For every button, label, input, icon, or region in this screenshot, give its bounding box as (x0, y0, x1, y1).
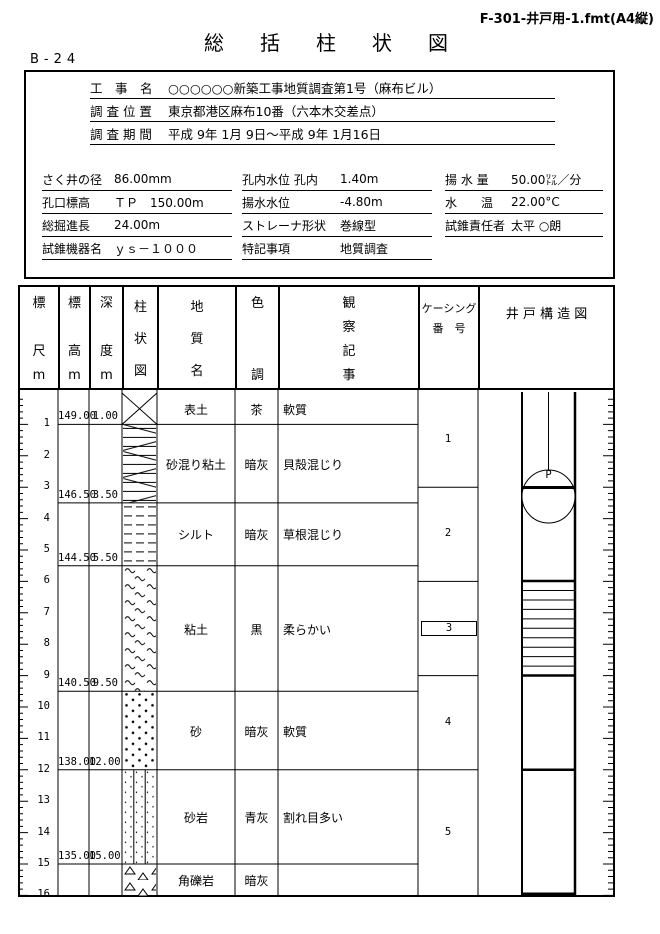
scale-label: 8 (24, 637, 50, 649)
casing-number: 2 (418, 527, 478, 539)
depth-value: 3.50 (89, 489, 118, 501)
soil-name: シルト (158, 526, 234, 543)
depth-value: 15.00 (89, 850, 118, 862)
depth-value: 5.50 (89, 552, 118, 564)
casing-number: 5 (418, 826, 478, 838)
soil-name: 角礫岩 (158, 872, 234, 889)
soil-name: 表土 (158, 401, 234, 418)
color-tone: 黒 (236, 621, 277, 638)
scale-label: 13 (24, 794, 50, 806)
observation-note: 軟質 (283, 723, 415, 740)
lithology-pattern-sand (123, 692, 156, 770)
elevation-value: 144.50 (58, 552, 86, 564)
lithology-pattern-topsoil (122, 393, 157, 424)
elevation-value: 140.50 (58, 677, 86, 689)
lithology-column (122, 393, 157, 896)
right-ruler (603, 399, 613, 895)
scale-label: 11 (24, 731, 50, 743)
color-tone: 茶 (236, 401, 277, 418)
scale-label: 9 (24, 669, 50, 681)
depth-value: 12.00 (89, 756, 118, 768)
boring-log-page: F-301-井戸用-1.fmt(A4縦) 総 括 柱 状 図 B-24 工 事 … (0, 0, 660, 934)
soil-name: 砂 (158, 723, 234, 740)
elevation-value: 135.00 (58, 850, 86, 862)
observation-note: 軟質 (283, 401, 415, 418)
lithology-pattern-sandstone (123, 770, 156, 863)
casing-number: 4 (418, 716, 478, 728)
scale-label: 10 (24, 700, 50, 712)
color-tone: 暗灰 (236, 723, 277, 740)
scale-label: 2 (24, 449, 50, 461)
elevation-value: 138.00 (58, 756, 86, 768)
scale-label: 16 (24, 888, 50, 900)
depth-value: 1.00 (89, 410, 118, 422)
scale-label: 7 (24, 606, 50, 618)
scale-label: 15 (24, 857, 50, 869)
table-body-layer: 12345678910111213141516表土茶軟質149.001.00砂混… (0, 0, 660, 934)
lithology-pattern-breccia (123, 865, 156, 897)
lithology-pattern-clay (123, 566, 156, 691)
soil-name: 砂混り粘土 (158, 456, 234, 473)
casing-number: 1 (418, 433, 478, 445)
color-tone: 暗灰 (236, 526, 277, 543)
scale-label: 1 (24, 417, 50, 429)
lithology-pattern-sandy-clay (123, 425, 156, 503)
elevation-value: 146.50 (58, 489, 86, 501)
observation-note: 貝殻混じり (283, 456, 415, 473)
scale-label: 14 (24, 826, 50, 838)
well-structure (521, 392, 576, 895)
casing-number-boxed: 3 (421, 621, 477, 636)
scale-label: 12 (24, 763, 50, 775)
observation-note: 草根混じり (283, 526, 415, 543)
scale-label: 4 (24, 512, 50, 524)
observation-note: 割れ目多い (283, 809, 415, 826)
lithology-pattern-silt (123, 503, 156, 565)
pump-label: P (541, 469, 556, 481)
color-tone: 暗灰 (236, 872, 277, 889)
elevation-value: 149.00 (58, 410, 86, 422)
color-tone: 暗灰 (236, 456, 277, 473)
soil-name: 粘土 (158, 621, 234, 638)
scale-label: 6 (24, 574, 50, 586)
scale-label: 3 (24, 480, 50, 492)
scale-label: 5 (24, 543, 50, 555)
observation-note: 柔らかい (283, 621, 415, 638)
color-tone: 青灰 (236, 809, 277, 826)
screen-slots (522, 591, 575, 667)
soil-name: 砂岩 (158, 809, 234, 826)
depth-value: 9.50 (89, 677, 118, 689)
